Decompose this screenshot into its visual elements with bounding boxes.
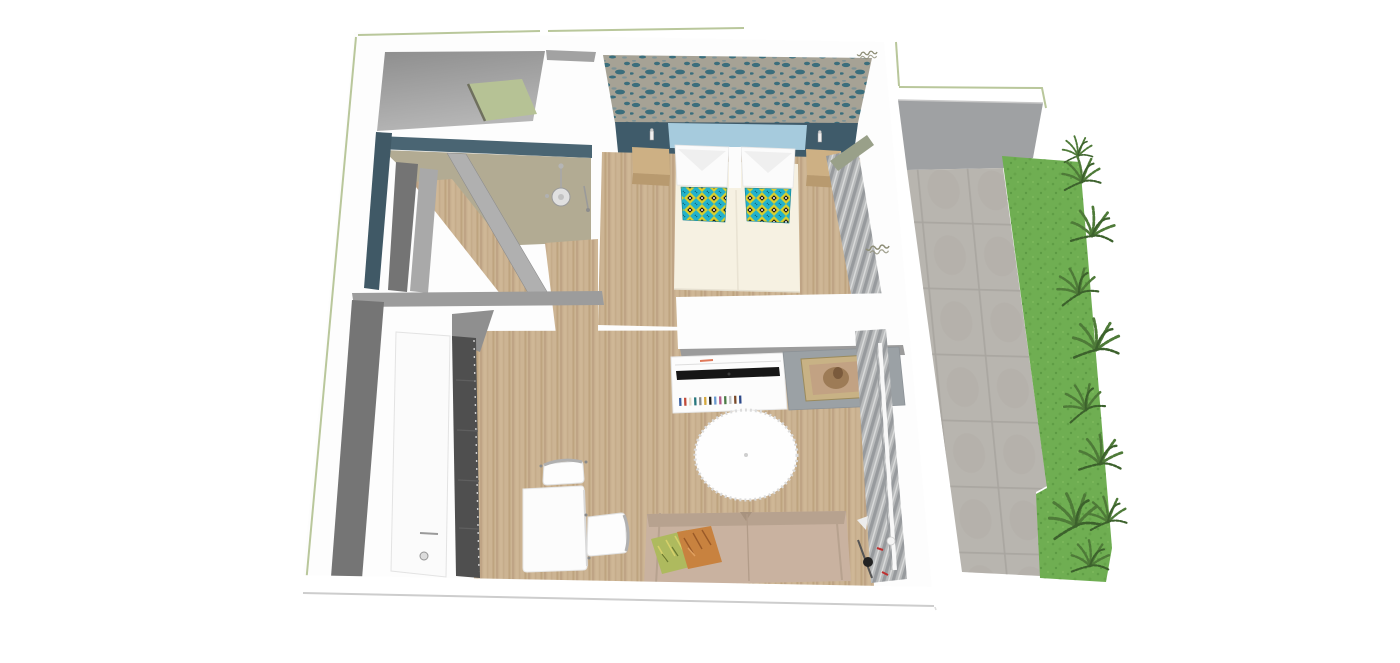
dining-table[interactable] <box>523 486 587 572</box>
toile-wallpaper-wall <box>603 55 872 123</box>
bathroom-south-wall <box>352 291 604 307</box>
bedroom <box>598 55 887 332</box>
floorplan-scene <box>0 0 1400 663</box>
sofa[interactable] <box>644 511 851 585</box>
nightstand-left[interactable] <box>632 147 670 186</box>
patterned-cushion-left <box>681 187 727 222</box>
twin-bed-right[interactable] <box>741 147 795 223</box>
patterned-cushion-right <box>745 188 791 223</box>
twin-bed-left[interactable] <box>675 145 729 222</box>
wall-sconce-left[interactable] <box>650 128 654 140</box>
door-handle[interactable] <box>420 533 438 534</box>
tv-console[interactable] <box>671 353 787 413</box>
chair-top[interactable] <box>540 460 588 485</box>
wardrobe[interactable] <box>452 336 480 578</box>
door-knob[interactable] <box>420 552 428 560</box>
wall-sconce-right[interactable] <box>818 130 822 142</box>
round-rug[interactable] <box>695 410 797 500</box>
console-accent <box>700 360 713 361</box>
chair-right[interactable] <box>585 513 629 560</box>
floorplan-render-canvas <box>0 0 1400 663</box>
entry-door[interactable] <box>391 332 450 577</box>
bed-gap <box>729 147 741 188</box>
door-lintel <box>546 50 596 62</box>
